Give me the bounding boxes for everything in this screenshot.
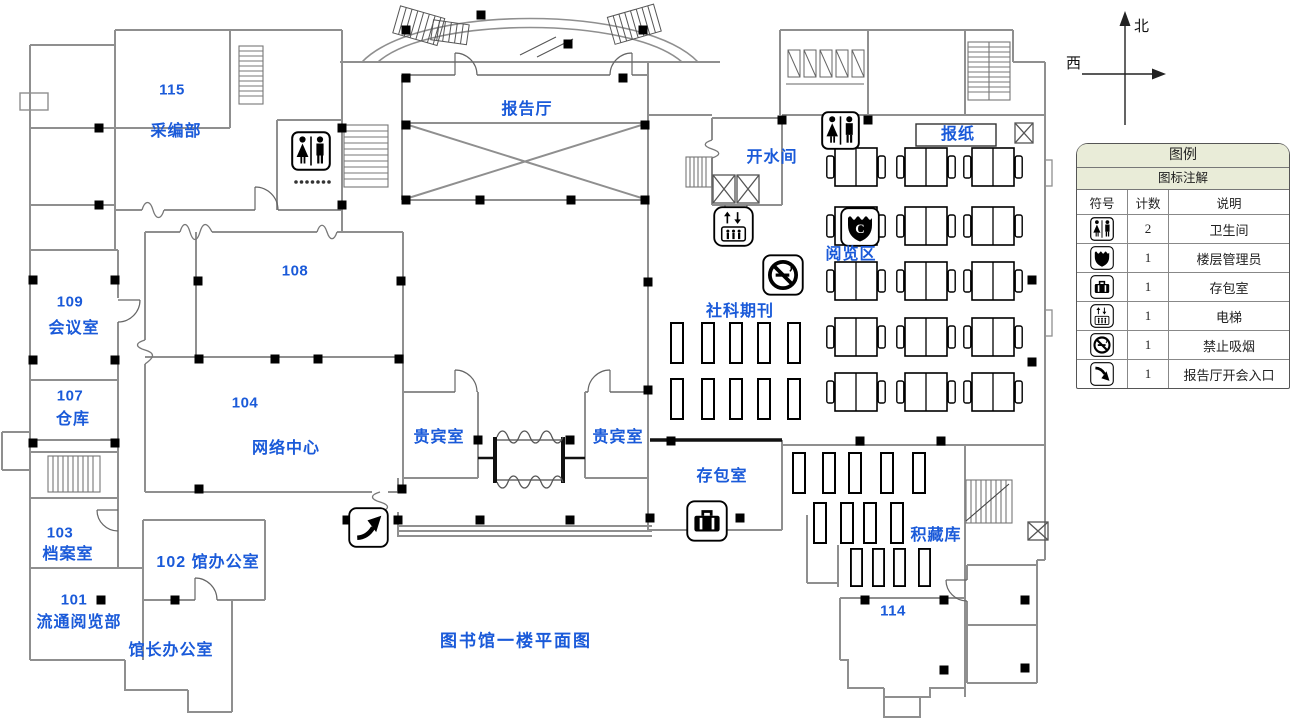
legend-count: 1 [1128, 273, 1169, 301]
legend-row-no-smoking: 1 禁止吸烟 [1077, 331, 1289, 360]
room-label-104-number: 104 [232, 396, 259, 411]
no-smoking-icon [763, 255, 802, 294]
stairs-southeast [966, 480, 1012, 523]
label-newspaper: 报纸 [941, 127, 975, 143]
lecture-hall-entrance-icon [349, 508, 388, 547]
room-label-107-name: 仓库 [56, 412, 90, 428]
compass-north-label: 北 [1134, 15, 1149, 36]
room-label-101-number: 101 [61, 593, 88, 608]
room-label-104-name: 网络中心 [252, 441, 320, 457]
floor-manager-icon [1090, 246, 1114, 270]
legend-desc: 存包室 [1169, 273, 1289, 301]
stairs-hall-left [344, 125, 388, 187]
room-label-115-name: 采编部 [150, 124, 201, 140]
plan-title: 图书馆一楼平面图 [440, 633, 592, 650]
legend-count: 1 [1128, 302, 1169, 330]
library-floorplan-page: C 115 采编部 报告厅 开水间 报纸 阅览区 108 109 会议室 社科期… [0, 0, 1294, 723]
restroom-fixture-dots [294, 180, 331, 184]
legend-count: 1 [1128, 360, 1169, 388]
stairs-northeast [968, 42, 1010, 100]
legend-desc: 卫生间 [1169, 215, 1289, 243]
legend-col-count: 计数 [1128, 190, 1169, 214]
reading-tables [827, 148, 1022, 411]
legend-row-floor-manager: 1 楼层管理员 [1077, 244, 1289, 273]
label-periodicals: 社科期刊 [706, 304, 774, 320]
room-label-vip-left: 贵宾室 [413, 430, 464, 446]
room-label-director-office: 馆长办公室 [128, 643, 213, 659]
legend-desc: 禁止吸烟 [1169, 331, 1289, 359]
legend-row-entrance: 1 报告厅开会入口 [1077, 360, 1289, 388]
legend-desc: 电梯 [1169, 302, 1289, 330]
room-label-102: 102 馆办公室 [156, 555, 259, 571]
legend-count: 2 [1128, 215, 1169, 243]
no-smoking-icon [1090, 333, 1114, 357]
periodical-shelves [671, 323, 800, 419]
compass-north-arrow [1120, 11, 1131, 26]
room-label-115-number: 115 [159, 83, 185, 98]
room-label-107-number: 107 [57, 389, 84, 404]
room-label-vip-right: 贵宾室 [592, 430, 643, 446]
legend-subtitle: 图标注解 [1077, 168, 1289, 190]
legend-count: 1 [1128, 244, 1169, 272]
legend-col-symbol: 符号 [1077, 190, 1128, 214]
toilet-stalls [786, 50, 864, 84]
legend-header-row: 符号 计数 说明 [1077, 190, 1289, 215]
bag-storage-icon [1090, 275, 1114, 299]
legend-row-elevator: 1 电梯 [1077, 302, 1289, 331]
elevator-icon [714, 207, 753, 246]
legend-desc: 报告厅开会入口 [1169, 360, 1289, 388]
legend-col-desc: 说明 [1169, 190, 1289, 214]
stairs-center [686, 157, 712, 187]
bag-storage-icon [687, 501, 726, 540]
label-reading-area: 阅览区 [825, 247, 876, 263]
floor-manager-icon: C [841, 208, 879, 246]
stairs-northwest [239, 46, 263, 104]
legend-row-bag-storage: 1 存包室 [1077, 273, 1289, 302]
restroom-icon [292, 132, 330, 170]
restroom-icon [822, 112, 859, 149]
stack-shelves [793, 453, 930, 586]
room-label-stack-room: 积藏库 [910, 528, 961, 544]
room-label-103-name: 档案室 [42, 547, 93, 563]
legend-row-restroom: 2 卫生间 [1077, 215, 1289, 244]
room-label-103-number: 103 [47, 526, 74, 541]
floor-manager-letter: C [855, 221, 864, 236]
room-label-109-name: 会议室 [48, 321, 99, 337]
room-label-109-number: 109 [57, 295, 84, 310]
elevator-icon [1090, 304, 1114, 328]
room-label-hot-water: 开水间 [746, 150, 797, 166]
stairs-west [48, 456, 100, 492]
room-label-101-name: 流通阅览部 [36, 615, 121, 631]
legend-desc: 楼层管理员 [1169, 244, 1289, 272]
room-label-114: 114 [880, 604, 906, 619]
compass-east-arrow [1152, 69, 1166, 80]
room-label-lecture-hall: 报告厅 [501, 102, 552, 118]
compass-west-label: 西 [1066, 52, 1081, 73]
room-label-bag-storage: 存包室 [696, 469, 747, 485]
legend-count: 1 [1128, 331, 1169, 359]
legend-title: 图例 [1077, 144, 1289, 168]
lecture-hall-entrance-icon [1090, 362, 1114, 386]
room-label-108: 108 [282, 264, 309, 279]
legend-panel: 图例 图标注解 符号 计数 说明 2 卫生间 1 楼层管理员 1 存包室 1 电… [1076, 143, 1290, 389]
auditorium-seats [393, 4, 661, 57]
restroom-icon [1090, 217, 1114, 241]
